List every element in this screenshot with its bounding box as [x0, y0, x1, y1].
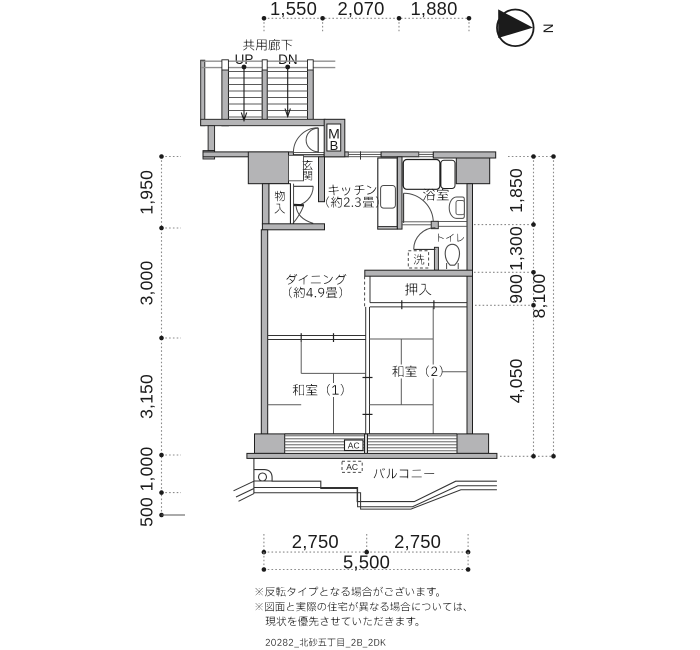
svg-text:1,000: 1,000 [137, 447, 157, 492]
svg-text:3,000: 3,000 [137, 261, 157, 306]
svg-text:500: 500 [137, 497, 157, 527]
svg-text:2,070: 2,070 [337, 0, 384, 19]
svg-text:2,750: 2,750 [292, 531, 339, 552]
svg-text:1,850: 1,850 [506, 168, 526, 213]
svg-text:1,550: 1,550 [270, 0, 317, 19]
svg-text:5,500: 5,500 [343, 551, 390, 572]
svg-text:900: 900 [506, 274, 526, 304]
svg-text:N: N [540, 24, 555, 34]
svg-text:AC: AC [348, 440, 360, 450]
svg-text:B: B [330, 138, 339, 153]
svg-text:1,880: 1,880 [410, 0, 457, 19]
svg-text:8,100: 8,100 [529, 274, 549, 319]
svg-text:1,950: 1,950 [137, 170, 157, 215]
svg-text:1,300: 1,300 [506, 226, 526, 271]
svg-text:4,050: 4,050 [506, 358, 526, 403]
svg-text:3,150: 3,150 [137, 374, 157, 419]
svg-text:AC: AC [346, 462, 358, 472]
svg-text:2,750: 2,750 [394, 531, 441, 552]
